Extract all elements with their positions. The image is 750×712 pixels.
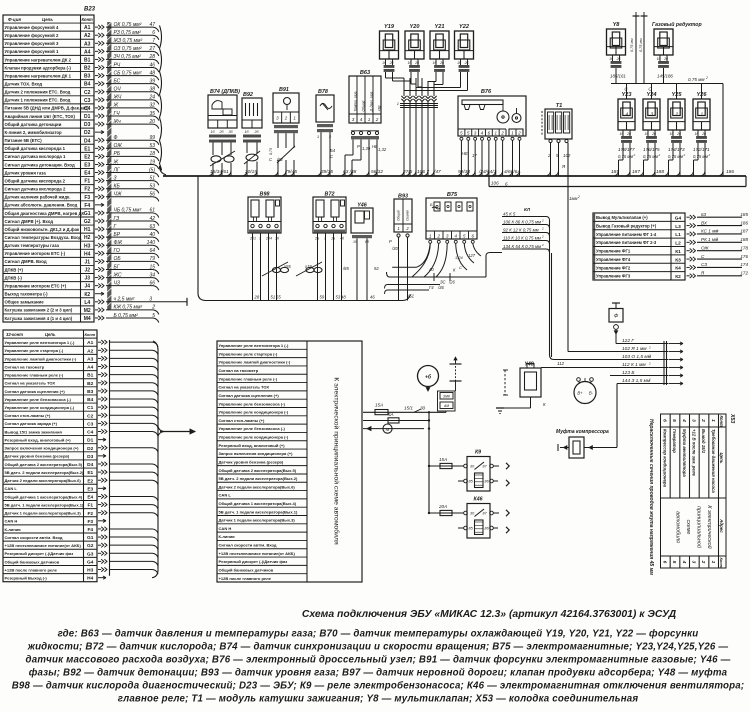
svg-text:145/186: 145/186	[657, 74, 673, 79]
svg-text:123 Б: 123 Б	[622, 370, 634, 376]
svg-text:В4: В4	[84, 82, 91, 88]
svg-text:1: 1	[397, 101, 399, 106]
svg-text:J4: J4	[84, 284, 90, 290]
svg-text:А3: А3	[87, 356, 93, 362]
svg-text:2: 2	[577, 195, 580, 199]
svg-text:А3: А3	[84, 41, 91, 47]
svg-text:К-линия: К-линия	[5, 527, 22, 532]
svg-text:40: 40	[149, 232, 155, 238]
svg-text:С: С	[459, 265, 462, 270]
svg-text:Управление питанием ФГ 2-3: Управление питанием ФГ 2-3	[596, 240, 657, 245]
svg-text:4: 4	[681, 418, 687, 422]
svg-text:ОЗ 0,75 мм²: ОЗ 0,75 мм²	[114, 46, 142, 52]
svg-text:6: 6	[662, 419, 668, 422]
svg-text:Требование движения насоса: Требование движения насоса	[711, 429, 716, 493]
svg-text:63: 63	[149, 224, 155, 230]
svg-text:112: 112	[557, 361, 565, 366]
svg-text:188: 188	[740, 237, 748, 242]
svg-text:х19: х19	[304, 264, 312, 269]
svg-text:3: 3	[149, 297, 152, 303]
svg-text:Катушка зажигания 4 (1 и 4 цил: Катушка зажигания 4 (1 и 4 цил)	[5, 316, 73, 321]
svg-text:92 К 12 К 0,75 мм: 92 К 12 К 0,75 мм	[503, 227, 539, 232]
svg-text:187: 187	[740, 229, 748, 234]
svg-text:Запрос включения кондиционера: Запрос включения кондиционера (+)	[5, 446, 80, 451]
svg-text:Резервный дискрет (-)/Датчик ф: Резервный дискрет (-)/Датчик фаз	[5, 551, 74, 556]
svg-text:59: 59	[320, 295, 325, 300]
svg-text:Управление форсункой 1: Управление форсункой 1	[5, 49, 59, 54]
svg-text:В2: В2	[87, 381, 93, 387]
svg-text:F1: F1	[84, 179, 90, 185]
svg-text:2: 2	[284, 116, 288, 121]
svg-text:2: 2	[648, 346, 651, 350]
svg-text:Датчик 1 педали акселератора(В: Датчик 1 педали акселератора(Вых.3)	[219, 518, 296, 523]
svg-text:172/171: 172/171	[693, 147, 710, 152]
svg-text:Клапан продувки адсорбера (-): Клапан продувки адсорбера (-)	[5, 65, 72, 70]
svg-text:Е2: Е2	[87, 478, 93, 484]
svg-text:Б 0,75 мм²: Б 0,75 мм²	[114, 313, 139, 319]
svg-text:ЗЧ 0,75 мм²: ЗЧ 0,75 мм²	[114, 54, 142, 60]
svg-text:+12В после главного реле: +12В после главного реле	[5, 567, 58, 572]
svg-text:D2: D2	[87, 446, 93, 452]
svg-text:Общий банковых датчиков: Общий банковых датчиков	[219, 567, 274, 572]
svg-text:J3: J3	[84, 276, 90, 282]
svg-text:ДПКВ (+): ДПКВ (+)	[5, 267, 24, 272]
svg-text:ДПКВ (-): ДПКВ (-)	[5, 275, 23, 280]
svg-text:Общий датчика 1 акселератора(В: Общий датчика 1 акселератора(Вых.4)	[219, 501, 297, 506]
svg-text:Датчик ТОХ. Вход: Датчик ТОХ. Вход	[5, 82, 43, 87]
svg-text:Датчик наличия рабочей жидк.: Датчик наличия рабочей жидк.	[5, 195, 71, 200]
svg-text:Y23: Y23	[622, 92, 633, 98]
svg-text:Сигнал стоп-лампы (+): Сигнал стоп-лампы (+)	[219, 418, 265, 423]
svg-text:2: 2	[541, 235, 544, 239]
svg-text:112 К 1 мм: 112 К 1 мм	[622, 362, 646, 368]
svg-text:0,75 мм: 0,75 мм	[618, 154, 633, 159]
svg-text:15А: 15А	[375, 403, 383, 408]
svg-text:Общее замыкание: Общее замыкание	[5, 300, 45, 305]
svg-text:С2: С2	[84, 90, 91, 96]
svg-text:+12В после главного реле: +12В после главного реле	[219, 576, 272, 581]
svg-text:В2: В2	[84, 66, 91, 72]
svg-text:176/175: 176/175	[643, 147, 660, 152]
svg-text:1: 1	[700, 112, 703, 118]
svg-text:Управление реле бензонасоса (-: Управление реле бензонасоса (-)	[219, 401, 286, 406]
svg-text:ЖЗ 0,75 мм²: ЖЗ 0,75 мм²	[113, 38, 143, 44]
svg-text:Датчик 2 положения ЕТС. Вход: Датчик 2 положения ЕТС. Вход	[5, 90, 71, 95]
svg-text:46: 46	[370, 295, 375, 300]
svg-text:G3: G3	[87, 551, 94, 557]
svg-text:L2: L2	[675, 241, 681, 247]
svg-text:L1: L1	[675, 232, 681, 238]
svg-text:Управление питанием ФГ 1-4: Управление питанием ФГ 1-4	[596, 232, 657, 237]
svg-text:20А: 20А	[438, 504, 447, 509]
svg-text:РЧ: РЧ	[114, 62, 121, 68]
svg-text:Нерасключенные сечения прово: Нерасключенные сечения проводов жгута на…	[648, 419, 654, 575]
svg-text:2а: 2а	[314, 237, 319, 241]
svg-text:Генератор: Генератор	[672, 429, 677, 453]
svg-text:32: 32	[149, 103, 155, 109]
svg-text:2: 2	[715, 228, 718, 232]
svg-text:0,75 мм: 0,75 мм	[630, 38, 634, 52]
svg-text:F2: F2	[84, 187, 90, 193]
svg-text:+12В неотключаемое питание(от: +12В неотключаемое питание(от АКБ)	[5, 543, 82, 548]
svg-text:Датчик температуры газа: Датчик температуры газа	[5, 243, 60, 248]
svg-text:42: 42	[149, 216, 155, 222]
svg-text:Р: Р	[389, 239, 392, 244]
svg-text:Общий датчика 2 акселератора(В: Общий датчика 2 акселератора(Вых.5)	[5, 462, 83, 467]
svg-text:2: 2	[151, 305, 155, 311]
svg-text:15/1: 15/1	[404, 406, 413, 411]
svg-text:Конт: Конт	[82, 17, 94, 22]
svg-text:1: 1	[710, 419, 716, 422]
svg-text:где: В63 — датчик давления и т: где: В63 — датчик давления и температуры…	[58, 629, 699, 640]
svg-text:CAN L: CAN L	[219, 493, 232, 498]
svg-text:/30: /30	[391, 246, 398, 251]
svg-text:К: К	[543, 402, 546, 407]
svg-text:Вывод Газовый редуктор (+): Вывод Газовый редуктор (+)	[596, 223, 657, 228]
svg-text:172: 172	[740, 271, 748, 276]
svg-text:Датчик 2 педали акселератора(В: Датчик 2 педали акселератора(Вых.6)	[5, 478, 82, 483]
svg-text:Общий датчика кислорода 2: Общий датчика кислорода 2	[5, 178, 66, 183]
svg-text:D2: D2	[84, 130, 91, 136]
svg-text:Управление реле бензонасоса (-: Управление реле бензонасоса (-)	[5, 397, 72, 402]
svg-text:28: 28	[254, 295, 260, 300]
svg-text:17: 17	[472, 153, 477, 158]
svg-text:F4: F4	[84, 203, 90, 209]
svg-text:4: 4	[625, 112, 628, 118]
svg-text:Компрессор кондиционера: Компрессор кондиционера	[663, 429, 668, 488]
svg-text:176: 176	[740, 254, 748, 259]
svg-text:Датчик 1 педали акселератора(В: Датчик 1 педали акселератора(Вых.3)	[5, 511, 82, 516]
svg-text:1: 1	[317, 135, 319, 139]
svg-text:Сигнал датчика детонации. Вход: Сигнал датчика детонации. Вход	[5, 162, 75, 167]
svg-text:2: 2	[683, 153, 686, 157]
svg-text:51: 51	[149, 175, 155, 181]
svg-text:Сигнал датчика сцепления (+): Сигнал датчика сцепления (+)	[5, 389, 66, 394]
svg-text:Цепь: Цепь	[42, 17, 53, 22]
svg-text:РЗ 0,75 мм²: РЗ 0,75 мм²	[114, 30, 142, 36]
svg-text:79: 79	[149, 256, 155, 262]
svg-text:Конт: Конт	[85, 332, 96, 337]
svg-text:106: 106	[491, 181, 499, 186]
svg-text:5: 5	[671, 419, 677, 422]
svg-text:5В датч. 1 педали акселератора: 5В датч. 1 педали акселератора(Вых.1)	[219, 509, 298, 514]
svg-text:F1: F1	[87, 503, 93, 509]
svg-text:178/177: 178/177	[618, 147, 635, 152]
svg-text:Управление реле кондиционера (: Управление реле кондиционера (-)	[219, 435, 289, 440]
svg-text:В1: В1	[87, 373, 93, 379]
svg-text:4: 4	[360, 117, 363, 122]
svg-text:Общий низковольтн. ДК1,2 и Д.ф: Общий низковольтн. ДК1,2 и Д.фак	[5, 227, 80, 232]
svg-text:56: 56	[149, 192, 155, 198]
svg-text:2: 2	[708, 153, 711, 157]
svg-text:D3: D3	[84, 122, 91, 128]
svg-text:х55: х55	[283, 264, 291, 269]
svg-text:В4: В4	[87, 397, 93, 403]
svg-text:Г4: Г4	[429, 285, 434, 290]
svg-text:Управление главным реле (-): Управление главным реле (-)	[219, 376, 278, 381]
svg-text:79/45: 79/45	[285, 169, 297, 175]
svg-text:/26: /26	[448, 280, 455, 285]
svg-text:Y21: Y21	[435, 24, 445, 30]
svg-text:+12В неотключаемое питание(от: +12В неотключаемое питание(от АКБ)	[219, 551, 296, 556]
svg-text:27: 27	[148, 46, 155, 52]
svg-text:Е4: Е4	[87, 495, 93, 501]
svg-text:186: 186	[726, 169, 734, 175]
svg-text:Сигнал на указатель ТОХ: Сигнал на указатель ТОХ	[5, 381, 56, 386]
svg-text:Ж: Ж	[113, 103, 119, 109]
svg-text:2: 2	[674, 112, 678, 118]
svg-text:С1: С1	[87, 405, 93, 411]
svg-text:Е3: Е3	[84, 163, 90, 169]
svg-text:+12 В после зам. реле: +12 В после зам. реле	[692, 429, 697, 476]
svg-text:Муфта вентилятора: Муфта вентилятора	[682, 429, 687, 477]
svg-text:Y48: Y48	[524, 362, 533, 368]
svg-text:1: 1	[710, 561, 716, 564]
svg-text:0,75 мм: 0,75 мм	[639, 38, 643, 52]
svg-text:Датчик уровня бензина (резерв): Датчик уровня бензина (резерв)	[5, 454, 70, 459]
svg-text:F4: F4	[87, 527, 93, 533]
svg-text:Общий датчика кислорода 1: Общий датчика кислорода 1	[5, 146, 66, 151]
svg-text:Управление лампой диагностики: Управление лампой диагностики (-)	[219, 360, 291, 365]
svg-text:схеме: схеме	[685, 520, 691, 535]
svg-text:Питание 5В (ЕТС): Питание 5В (ЕТС)	[5, 138, 43, 143]
svg-text:63: 63	[701, 212, 707, 217]
svg-text:Ж: Ж	[113, 159, 119, 165]
svg-text:К1: К1	[675, 249, 681, 255]
svg-text:F3: F3	[84, 195, 90, 201]
svg-text:Датчик уровня бензина (резерв): Датчик уровня бензина (резерв)	[219, 459, 284, 464]
svg-text:140: 140	[147, 240, 156, 246]
svg-text:Управление нагревателем ДК 2: Управление нагревателем ДК 2	[5, 57, 72, 62]
svg-text:18: 18	[149, 151, 155, 157]
svg-text:Д. давл. газа: Д. давл. газа	[370, 92, 374, 113]
svg-text:3: 3	[691, 561, 697, 564]
svg-text:D1: D1	[87, 438, 93, 444]
svg-text:102 Я 1 мм: 102 Я 1 мм	[622, 346, 647, 352]
svg-text:2: 2	[500, 131, 504, 136]
svg-text:+б: +б	[425, 374, 432, 381]
svg-text:3: 3	[691, 419, 697, 422]
svg-text:Общий датчика 1 акселератора(В: Общий датчика 1 акселератора(Вых.4)	[5, 494, 83, 499]
svg-text:2: 2	[648, 362, 651, 366]
svg-text:3: 3	[352, 117, 355, 122]
svg-text:19: 19	[149, 159, 155, 165]
svg-text:Управление ФГ3: Управление ФГ3	[596, 274, 631, 279]
svg-text:46: 46	[149, 62, 155, 68]
svg-text:Управление мотором ЕТС (+): Управление мотором ЕТС (+)	[5, 283, 67, 288]
svg-text:К-линия 2, иммобилизатор: К-линия 2, иммобилизатор	[5, 130, 63, 135]
svg-text:110 К 10 К 0,75 мм: 110 К 10 К 0,75 мм	[503, 235, 541, 240]
svg-text:64: 64	[149, 248, 155, 254]
svg-text:G1: G1	[87, 535, 94, 541]
svg-text:Н3: Н3	[84, 243, 91, 249]
svg-text:А1: А1	[87, 340, 93, 346]
svg-text:CAN H: CAN H	[5, 519, 18, 524]
svg-text:КБ: КБ	[114, 183, 121, 189]
svg-text:В3: В3	[84, 74, 91, 80]
svg-text:1: 1	[397, 226, 399, 231]
svg-text:ФЖ: ФЖ	[114, 240, 123, 246]
svg-text:Общий датчика 2 акселератора(В: Общий датчика 2 акселератора(Вых.5)	[219, 468, 297, 473]
svg-text:ВХ: ВХ	[701, 220, 708, 225]
svg-text:С4: С4	[84, 106, 91, 112]
svg-text:39/35: 39/35	[321, 169, 333, 175]
svg-text:Сигнал датчика кислорода 1: Сигнал датчика кислорода 1	[5, 154, 67, 159]
svg-text:39: 39	[149, 78, 155, 84]
svg-text:Темпер. газа: Темпер. газа	[354, 91, 358, 111]
svg-text:К электрической: К электрической	[706, 505, 713, 548]
svg-text:Запрос включения кондиционера: Запрос включения кондиционера (+)	[219, 451, 294, 456]
svg-text:Сигнал стоп-лампы (+): Сигнал стоп-лампы (+)	[5, 413, 51, 418]
svg-text:2: 2	[700, 418, 706, 422]
svg-text:М2: М2	[84, 308, 91, 314]
svg-text:185/161: 185/161	[610, 74, 626, 79]
svg-text:А4: А4	[87, 365, 93, 371]
svg-text:99: 99	[149, 135, 155, 141]
svg-text:Ф: Ф	[114, 135, 118, 141]
svg-text:35: 35	[149, 111, 155, 117]
svg-text:РБ: РБ	[114, 151, 121, 157]
svg-text:ОЖ: ОЖ	[701, 245, 709, 250]
svg-text:Резервный дискрет (-)/Датчик ф: Резервный дискрет (-)/Датчик фаз	[219, 559, 288, 564]
svg-text:В+: В+	[577, 391, 583, 396]
svg-text:185: 185	[740, 212, 748, 217]
svg-text:КЖ 0,75 мм²: КЖ 0,75 мм²	[114, 305, 143, 311]
svg-text:Н1: Н1	[84, 227, 91, 233]
svg-text:/85: /85	[342, 266, 349, 271]
svg-text:ОК 0,75 мм²: ОК 0,75 мм²	[114, 22, 142, 28]
svg-text:В63: В63	[360, 70, 371, 76]
svg-text:Выход тахометра (-): Выход тахометра (-)	[5, 292, 49, 297]
svg-text:J2: J2	[84, 268, 90, 274]
svg-text:L3: L3	[675, 224, 681, 230]
svg-text:53: 53	[149, 143, 155, 149]
svg-text:В76: В76	[481, 89, 492, 95]
svg-text:53: 53	[149, 183, 155, 189]
svg-text:3: 3	[650, 112, 653, 118]
svg-text:Газовый редуктор: Газовый редуктор	[652, 21, 702, 28]
svg-text:Н3: Н3	[87, 568, 93, 574]
svg-text:В3: В3	[87, 389, 93, 395]
svg-text:К4: К4	[675, 266, 681, 272]
svg-text:Y26: Y26	[697, 92, 708, 98]
svg-text:Y24: Y24	[647, 92, 658, 98]
svg-text:К-линия: К-линия	[219, 534, 236, 539]
svg-text:F3: F3	[87, 519, 93, 525]
svg-text:НЕ: НЕ	[462, 151, 468, 156]
svg-text:/82: /82	[276, 157, 283, 162]
svg-text:Сигнал датчика сцепления (+): Сигнал датчика сцепления (+)	[219, 393, 280, 398]
svg-text:фазы; В92 — датчик детонации;: фазы; В92 — датчик детонации; В93 — датч…	[29, 668, 728, 679]
svg-text:Сигнал датчика заряда (+): Сигнал датчика заряда (+)	[5, 421, 58, 426]
svg-text:Y8: Y8	[613, 22, 621, 28]
svg-text:Сигнал датчика кислорода 2: Сигнал датчика кислорода 2	[5, 187, 67, 192]
svg-text:2: 2	[541, 219, 544, 223]
svg-text:174: 174	[740, 262, 748, 267]
svg-text:Б: Б	[430, 202, 433, 207]
svg-text:2: 2	[437, 233, 441, 238]
svg-text:Управление реле стартера (-): Управление реле стартера (-)	[5, 348, 64, 353]
svg-text:Т1: Т1	[556, 103, 563, 109]
svg-text:45 К 5: 45 К 5	[503, 211, 516, 216]
svg-text:Датчик 1 положения ЕТС. Вход: Датчик 1 положения ЕТС. Вход	[5, 98, 71, 103]
svg-text:В75: В75	[447, 192, 458, 198]
svg-text:Резервный Выход (-): Резервный Выход (-)	[5, 576, 48, 581]
svg-text:БС: БС	[114, 78, 121, 84]
svg-text:34: 34	[149, 272, 155, 278]
svg-text:Сигнал скорости авт/м. Вход: Сигнал скорости авт/м. Вход	[5, 535, 63, 540]
svg-text:В78: В78	[318, 89, 328, 95]
svg-text:датчик массового расхода возду: датчик массового расхода воздуха; В76 — …	[26, 655, 731, 666]
svg-text:2: 2	[700, 560, 706, 564]
svg-text:+5В: +5В	[378, 105, 382, 112]
svg-text:ЗМК: ЗМК	[443, 395, 451, 399]
svg-text:1: 1	[368, 117, 371, 122]
svg-text:Н2: Н2	[84, 235, 91, 241]
svg-text:жидкости; В72 — датчик кислоро: жидкости; В72 — датчик кислорода; В74 — …	[27, 642, 729, 653]
svg-text:Управление форсункой 3: Управление форсункой 3	[5, 41, 59, 46]
svg-text:186: 186	[740, 220, 748, 225]
svg-text:5В датч. 2 педали акселератора: 5В датч. 2 педали акселератора(Вых.2)	[5, 470, 84, 475]
svg-text:6: 6	[662, 561, 668, 564]
svg-text:55: 55	[276, 295, 281, 300]
svg-text:G2: G2	[84, 219, 91, 225]
svg-text:З: З	[114, 175, 117, 181]
svg-text:188: 188	[656, 169, 664, 175]
svg-text:6: 6	[152, 30, 155, 36]
svg-text:0,75 мм: 0,75 мм	[693, 154, 708, 159]
svg-text:Управление реле вентилятора 1: Управление реле вентилятора 1 (-)	[219, 343, 290, 348]
svg-text:ОЧ: ОЧ	[114, 87, 122, 93]
svg-text:D4: D4	[84, 138, 91, 144]
svg-text:Вывод Мультиклапан (+): Вывод Мультиклапан (+)	[596, 215, 648, 220]
svg-text:В74 (ДПКВ): В74 (ДПКВ)	[210, 89, 240, 95]
svg-text:G4: G4	[87, 559, 94, 565]
svg-text:7: 7	[152, 38, 155, 44]
svg-text:Управление реле стартера (-): Управление реле стартера (-)	[219, 351, 278, 356]
svg-text:2: 2	[705, 76, 708, 80]
svg-text:178: 178	[740, 245, 748, 250]
svg-text:Управление ФГ1: Управление ФГ1	[596, 249, 631, 254]
svg-text:Общий: Общий	[397, 210, 401, 221]
svg-text:5В датч. 2 педали акселератора: 5В датч. 2 педали акселератора(Вых.2)	[219, 476, 298, 481]
svg-text:Управление реле кондиционера (: Управление реле кондиционера (-)	[5, 405, 75, 410]
svg-text:Управление реле кондиционера (: Управление реле кондиционера (-)	[219, 410, 289, 415]
svg-text:2: 2	[541, 243, 544, 247]
svg-text:F2: F2	[87, 511, 93, 517]
svg-text:В91: В91	[279, 87, 289, 93]
svg-text:ЗС: ЗС	[440, 280, 446, 285]
svg-text:Датчик 2 педали акселератора(В: Датчик 2 педали акселератора(Вых.6)	[219, 484, 296, 489]
svg-text:G2: G2	[87, 543, 94, 549]
svg-text:Н4: Н4	[87, 576, 93, 582]
svg-text:Конт: Конт	[719, 558, 724, 569]
svg-text:А4: А4	[84, 49, 91, 55]
svg-text:0,75 мм: 0,75 мм	[688, 77, 705, 82]
svg-text:С3: С3	[84, 98, 91, 104]
svg-text:АМ: АМ	[443, 404, 449, 408]
svg-text:5В датч. 1 педали акселератора: 5В датч. 1 педали акселератора(Вых.1)	[5, 502, 84, 507]
svg-text:М: М	[386, 427, 390, 432]
svg-text:Датчик абсолютн. давления. Вхо: Датчик абсолютн. давления. Вход	[5, 203, 78, 208]
svg-text:4: 4	[681, 560, 687, 564]
svg-text:Сигнал температуры Воздуха. Вх: Сигнал температуры Воздуха. Вход	[5, 235, 82, 240]
svg-text:ГО: ГО	[114, 248, 121, 254]
svg-text:D3: D3	[87, 454, 93, 460]
svg-text:5: 5	[152, 313, 155, 319]
svg-text:К9: К9	[475, 450, 481, 456]
svg-text:принципиальной: принципиальной	[696, 506, 703, 548]
